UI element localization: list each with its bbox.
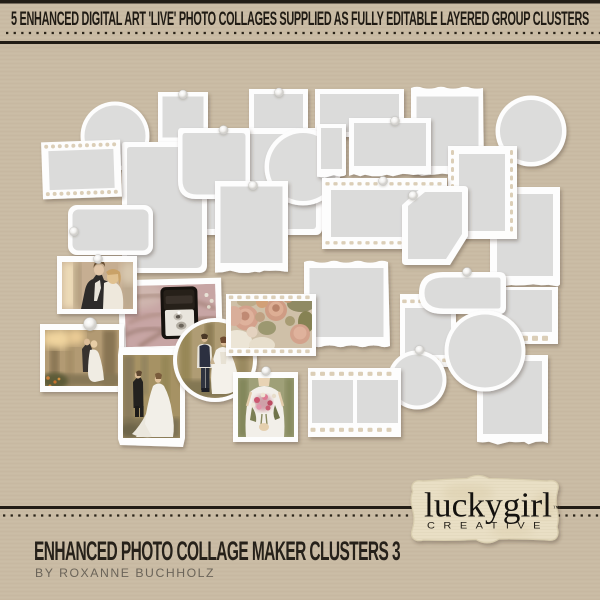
svg-text:5 ENHANCED DIGITAL ART 'LIVE': 5 ENHANCED DIGITAL ART 'LIVE' PHOTO COLL… [11,9,589,30]
svg-text:BY ROXANNE BUCHHOLZ: BY ROXANNE BUCHHOLZ [35,566,215,580]
svg-text:ENHANCED PHOTO COLLAGE MAKER C: ENHANCED PHOTO COLLAGE MAKER CLUSTERS 3 [34,536,401,566]
svg-text:luckygirl: luckygirl [424,487,552,525]
svg-text:™: ™ [553,505,560,512]
svg-text:CREATIVE: CREATIVE [427,521,549,531]
